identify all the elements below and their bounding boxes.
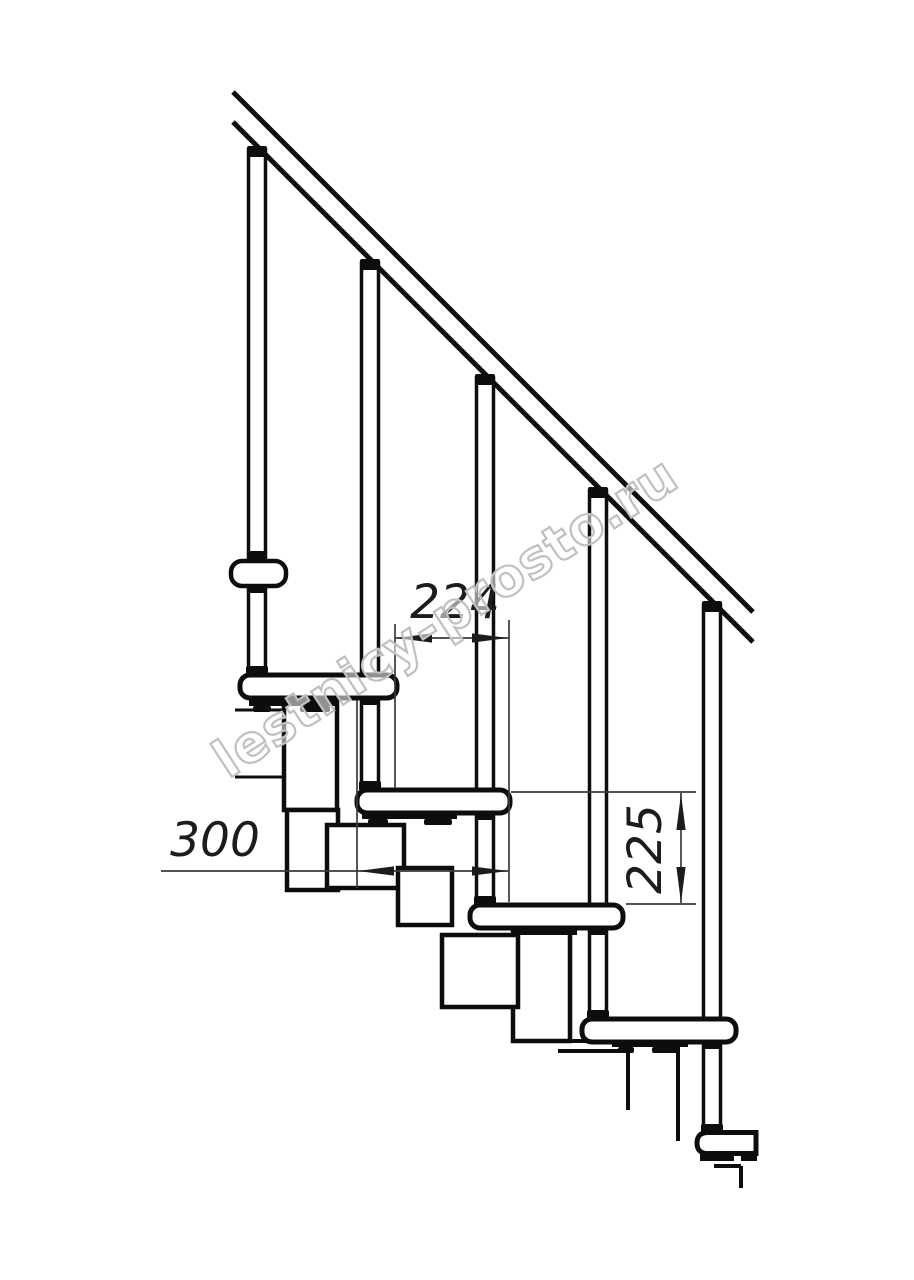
rail-joint-1 <box>247 146 267 157</box>
collar-above-tread1 <box>248 551 266 561</box>
plate-tread3-tab2 <box>424 819 452 825</box>
watermark-text: lestnicy-prosto.ru <box>203 445 689 790</box>
tread-6 <box>697 1133 756 1154</box>
collar-below-tread3 <box>476 813 494 820</box>
rail-joint-3 <box>475 374 495 385</box>
collar-below-tread1 <box>249 586 265 593</box>
module-box-step3-lower <box>398 868 452 925</box>
foot-collar-tread3 <box>359 781 381 791</box>
plate-tread5-tab1 <box>618 1047 634 1053</box>
staircase-drawing-canvas: 224 300 225 lestnicy-prosto.ru <box>0 0 914 1280</box>
baluster-3 <box>477 378 494 907</box>
foot-collar-tread2 <box>246 666 268 676</box>
foot-collar-tread5 <box>587 1010 609 1020</box>
module-box-step4-lower <box>513 928 570 1041</box>
rail-joint-2 <box>360 259 380 270</box>
dim225-arrow-down <box>676 867 685 903</box>
dim300-label: 300 <box>170 813 260 868</box>
staircase-drawing: 224 300 225 lestnicy-prosto.ru <box>0 0 914 1280</box>
collar-below-tread5 <box>703 1042 721 1049</box>
module-box-step4-upper <box>442 935 518 1007</box>
tread-1 <box>231 561 286 586</box>
rail-joint-5 <box>702 601 722 612</box>
baluster-2 <box>362 263 379 792</box>
baluster-5 <box>704 605 721 1135</box>
module-box-step3-upper <box>327 825 404 888</box>
tread-4 <box>470 905 623 928</box>
foot-collar-tread6 <box>701 1124 723 1134</box>
plate-tread3-tab1 <box>368 819 388 825</box>
tread-5 <box>582 1019 736 1042</box>
dim225-arrow-up <box>676 794 685 830</box>
baluster-4 <box>590 491 607 1022</box>
foot-collar-tread4 <box>474 896 496 906</box>
tread-3 <box>357 790 510 813</box>
baluster-1 <box>249 150 266 677</box>
dim225-label: 225 <box>618 804 673 894</box>
collar-below-tread4 <box>589 928 607 935</box>
plate-tread5-tab2 <box>652 1047 678 1053</box>
